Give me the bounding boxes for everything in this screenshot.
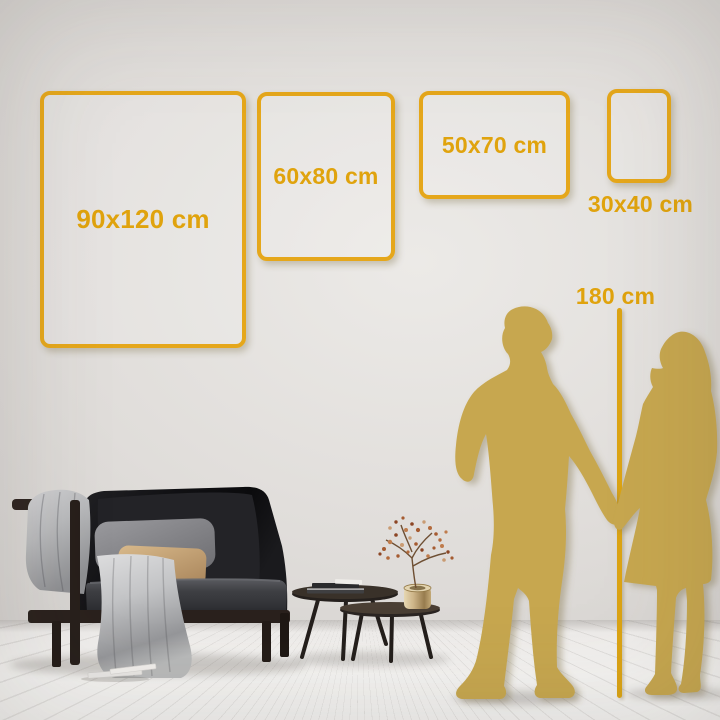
- size-frame-30x40: [607, 89, 671, 183]
- height-ruler-label: 180 cm: [563, 283, 668, 309]
- size-frame-50x70: 50x70 cm: [419, 91, 570, 199]
- size-label-60x80: 60x80 cm: [273, 163, 378, 190]
- size-label-50x70: 50x70 cm: [442, 132, 547, 159]
- size-label-90x120: 90x120 cm: [76, 204, 209, 235]
- size-label-30x40: 30x40 cm: [580, 191, 701, 217]
- size-frame-60x80: 60x80 cm: [257, 92, 395, 261]
- size-frame-90x120: 90x120 cm: [40, 91, 246, 348]
- size-guide-scene: 90x120 cm 60x80 cm 50x70 cm 30x40 cm 180…: [0, 0, 720, 720]
- floor: [0, 620, 720, 720]
- height-ruler-line: [617, 308, 622, 698]
